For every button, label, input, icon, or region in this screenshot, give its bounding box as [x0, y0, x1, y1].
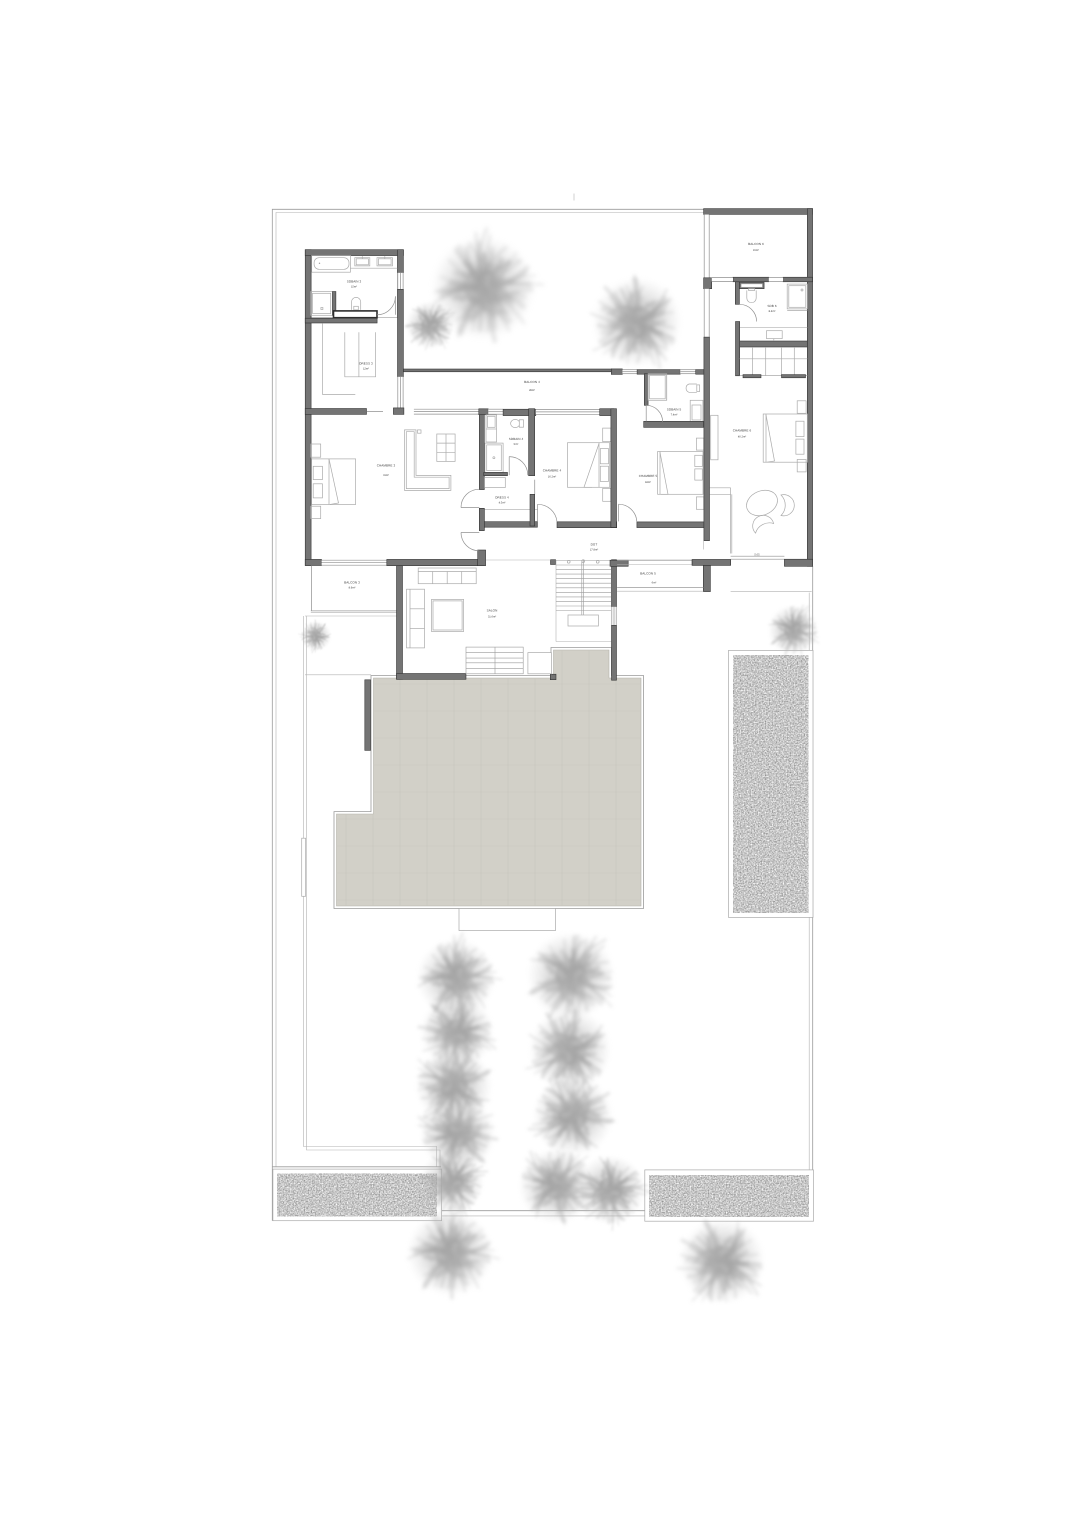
svg-text:5m²: 5m² — [514, 443, 519, 446]
svg-text:8.4m²: 8.4m² — [769, 310, 776, 313]
svg-text:CHAMBRE 6: CHAMBRE 6 — [733, 429, 752, 433]
svg-text:DRESS 4: DRESS 4 — [495, 496, 509, 500]
svg-text:DRESS 3: DRESS 3 — [359, 362, 373, 366]
svg-text:18m²: 18m² — [645, 481, 651, 484]
svg-text:28m²: 28m² — [529, 389, 535, 392]
svg-text:CHAMBRE 5: CHAMBRE 5 — [639, 474, 658, 478]
svg-text:15m²: 15m² — [351, 286, 357, 289]
svg-text:8.9m²: 8.9m² — [349, 587, 356, 590]
svg-text:BALCON 3: BALCON 3 — [344, 581, 360, 585]
svg-text:BALCON 6: BALCON 6 — [748, 242, 764, 246]
svg-text:6m²: 6m² — [652, 582, 657, 585]
svg-text:CHAMBRE 3: CHAMBRE 3 — [377, 464, 396, 468]
svg-text:17.8m²: 17.8m² — [590, 549, 598, 552]
svg-text:SALON: SALON — [487, 609, 498, 613]
svg-text:CHAMBRE 4: CHAMBRE 4 — [543, 469, 562, 473]
svg-text:BALCON 5: BALCON 5 — [640, 572, 656, 576]
svg-text:DGT: DGT — [591, 543, 598, 547]
svg-text:7.4m²: 7.4m² — [671, 414, 678, 417]
svg-text:SDBAIN 5: SDBAIN 5 — [667, 408, 682, 412]
svg-text:BALCON 4: BALCON 4 — [524, 380, 540, 384]
svg-text:16.2m²: 16.2m² — [548, 476, 556, 479]
svg-text:SDB 6: SDB 6 — [767, 304, 776, 308]
svg-text:4.5m²: 4.5m² — [499, 502, 506, 505]
svg-text:40.2m²: 40.2m² — [738, 436, 746, 439]
svg-text:SDBAIN 3: SDBAIN 3 — [347, 280, 362, 284]
svg-text:31.6m²: 31.6m² — [488, 616, 496, 619]
svg-text:SDBAIN 4: SDBAIN 4 — [509, 437, 524, 441]
svg-text:12m²: 12m² — [363, 368, 369, 371]
svg-text:5.05: 5.05 — [754, 553, 760, 556]
svg-text:31m²: 31m² — [383, 474, 389, 477]
svg-text:15m²: 15m² — [753, 249, 759, 252]
